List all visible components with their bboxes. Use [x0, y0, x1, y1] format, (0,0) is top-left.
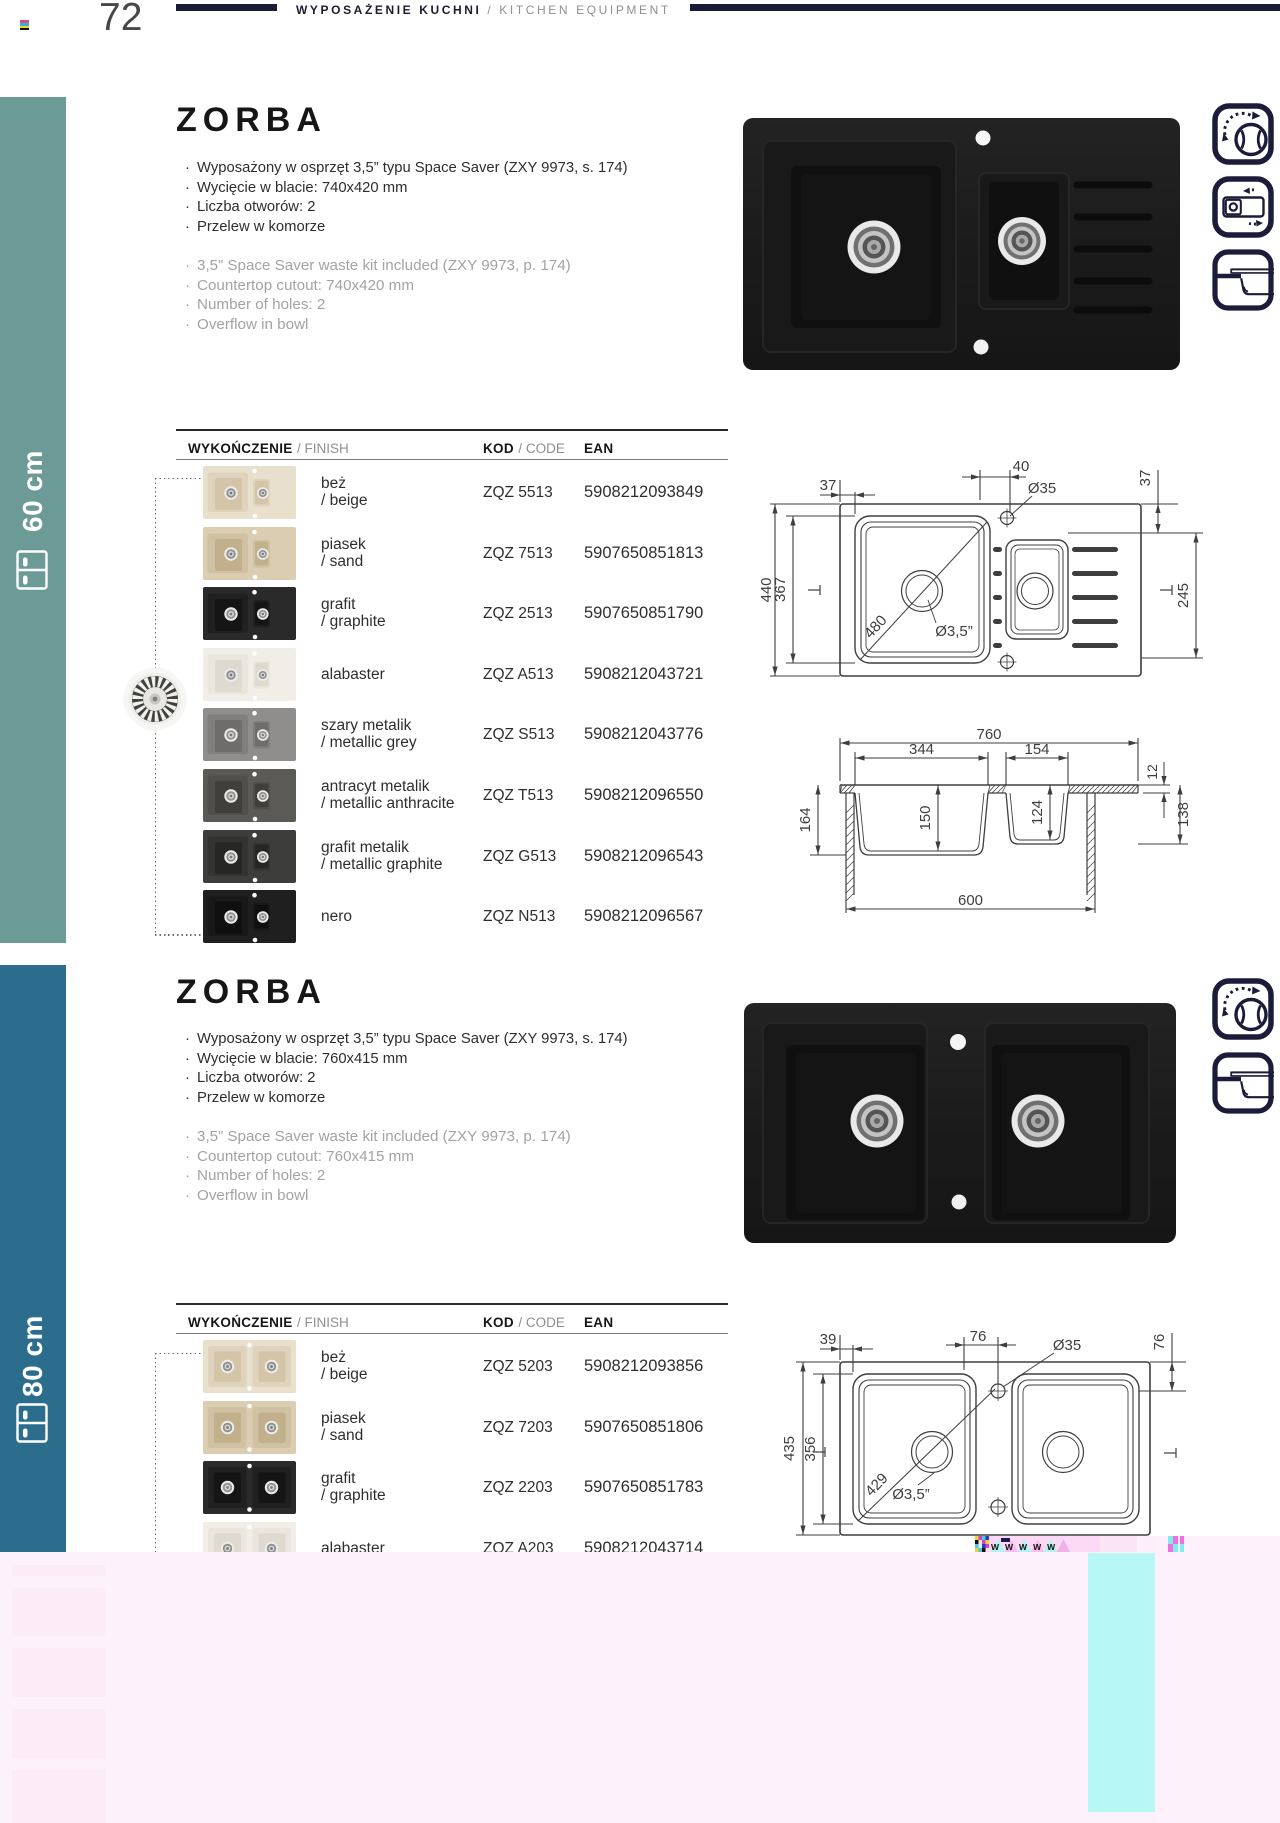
svg-text:760: 760	[976, 726, 1001, 743]
svg-text:Ø3,5”: Ø3,5”	[892, 1486, 930, 1503]
svg-text:480: 480	[861, 612, 891, 642]
svg-text:Ø3,5”: Ø3,5”	[935, 623, 973, 640]
svg-text:600: 600	[958, 892, 983, 909]
svg-text:429: 429	[862, 1470, 892, 1500]
svg-text:Ø35: Ø35	[1028, 480, 1056, 497]
svg-text:39: 39	[820, 1331, 837, 1348]
svg-text:12: 12	[1144, 764, 1160, 780]
svg-text:Ø35: Ø35	[1053, 1337, 1081, 1354]
svg-text:356: 356	[802, 1436, 819, 1461]
svg-text:245: 245	[1175, 583, 1192, 608]
svg-text:344: 344	[909, 741, 934, 758]
svg-text:37: 37	[820, 477, 837, 494]
svg-text:150: 150	[917, 805, 934, 830]
svg-text:124: 124	[1029, 800, 1046, 825]
svg-text:76: 76	[1151, 1334, 1168, 1351]
svg-text:435: 435	[781, 1436, 798, 1461]
svg-text:40: 40	[1013, 458, 1030, 475]
svg-text:164: 164	[797, 807, 814, 832]
svg-text:154: 154	[1024, 741, 1049, 758]
svg-text:138: 138	[1175, 802, 1192, 827]
svg-text:367: 367	[772, 577, 789, 602]
svg-text:76: 76	[970, 1328, 987, 1345]
svg-text:37: 37	[1137, 470, 1154, 487]
